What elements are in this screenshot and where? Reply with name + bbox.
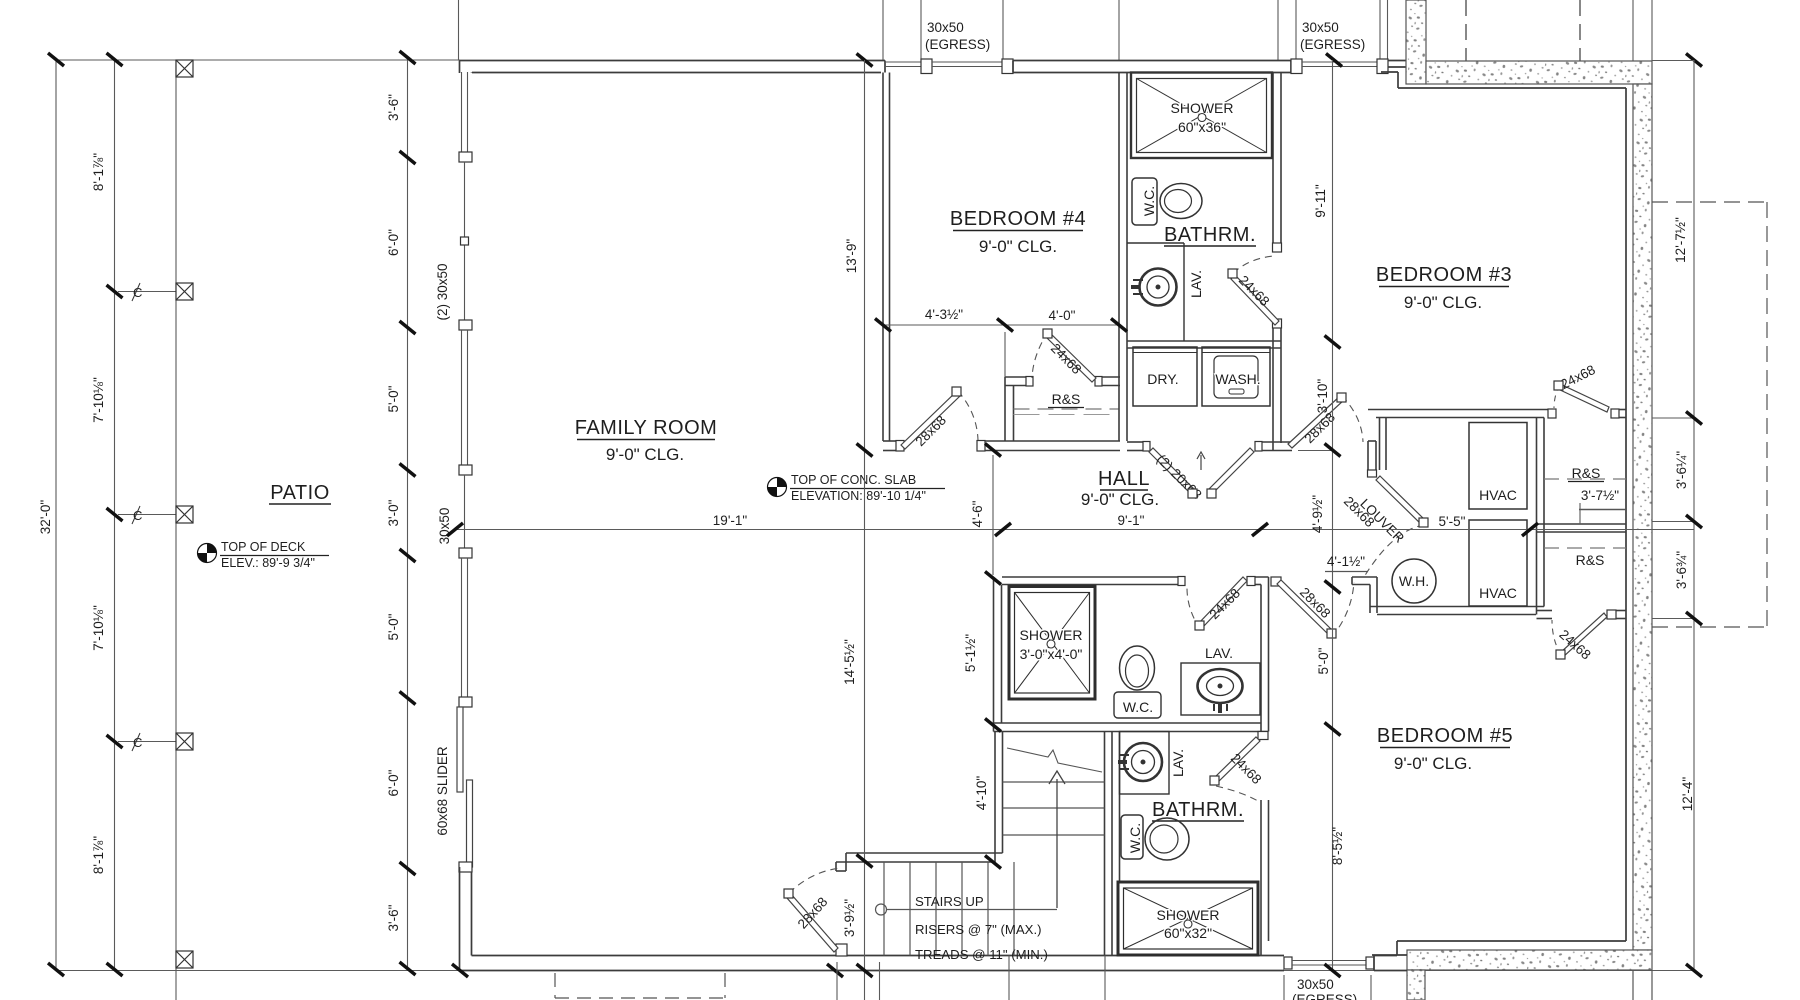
svg-text:(EGRESS): (EGRESS) [1300,37,1365,52]
svg-text:12'-7½": 12'-7½" [1673,217,1688,263]
svg-text:3'-6": 3'-6" [386,94,401,121]
svg-text:9'-0" CLG.: 9'-0" CLG. [606,445,684,464]
svg-text:4'-6": 4'-6" [970,500,985,527]
svg-text:LAV.: LAV. [1205,645,1233,661]
svg-text:RISERS @ 7" (MAX.): RISERS @ 7" (MAX.) [915,922,1042,937]
svg-text:HVAC: HVAC [1479,487,1517,503]
svg-text:4'-9½": 4'-9½" [1310,495,1325,533]
svg-text:W.C.: W.C. [1127,823,1143,853]
svg-text:TOP OF DECK: TOP OF DECK [221,540,306,554]
svg-text:BEDROOM #4: BEDROOM #4 [950,208,1086,230]
svg-text:8'-1⅞": 8'-1⅞" [91,153,106,191]
svg-text:9'-1": 9'-1" [1118,513,1145,528]
svg-text:HVAC: HVAC [1479,585,1517,601]
svg-text:TREADS @ 11" (MIN.): TREADS @ 11" (MIN.) [915,947,1048,962]
svg-text:4'-1½": 4'-1½" [1327,554,1365,569]
svg-text:4'-10": 4'-10" [974,776,989,811]
svg-text:8'-1⅞": 8'-1⅞" [91,836,106,874]
svg-text:9'-0" CLG.: 9'-0" CLG. [1081,490,1159,509]
svg-text:9'-0" CLG.: 9'-0" CLG. [1404,293,1482,312]
svg-text:7'-10⅛": 7'-10⅛" [91,377,106,423]
svg-text:3'-0": 3'-0" [386,499,401,526]
svg-text:5'-1½": 5'-1½" [963,634,978,672]
svg-text:TOP OF CONC. SLAB: TOP OF CONC. SLAB [791,473,916,487]
svg-text:WASH.: WASH. [1215,371,1260,387]
svg-text:13'-9": 13'-9" [844,239,859,274]
svg-text:LAV.: LAV. [1188,270,1204,298]
svg-text:5'-0": 5'-0" [1316,647,1331,674]
svg-text:BEDROOM #3: BEDROOM #3 [1376,264,1512,286]
svg-text:W.C.: W.C. [1123,699,1153,715]
svg-text:FAMILY ROOM: FAMILY ROOM [575,417,718,439]
svg-text:9'-0" CLG.: 9'-0" CLG. [1394,754,1472,773]
svg-text:12'-4": 12'-4" [1680,777,1695,812]
svg-text:W.H.: W.H. [1399,573,1429,589]
svg-text:3'-6¾": 3'-6¾" [1674,551,1689,589]
svg-text:R&S: R&S [1572,465,1601,481]
svg-text:9'-11": 9'-11" [1313,184,1328,218]
svg-text:60x68 SLIDER: 60x68 SLIDER [435,746,450,836]
svg-text:R&S: R&S [1052,391,1081,407]
svg-text:6'-0": 6'-0" [386,769,401,796]
svg-text:3'-6": 3'-6" [386,904,401,931]
svg-text:5'-0": 5'-0" [386,613,401,640]
svg-text:30x50: 30x50 [1302,20,1339,35]
svg-text:30x50: 30x50 [1297,977,1334,992]
svg-text:3'-6¼": 3'-6¼" [1674,451,1689,489]
svg-text:ELEV.: 89'-9 3/4": ELEV.: 89'-9 3/4" [221,556,315,570]
svg-text:(2) 30x50: (2) 30x50 [435,263,450,320]
svg-text:4'-3½": 4'-3½" [925,307,963,322]
svg-text:30x50: 30x50 [437,508,452,545]
svg-text:3'-10": 3'-10" [1315,379,1330,414]
svg-text:R&S: R&S [1576,552,1605,568]
svg-text:(EGRESS): (EGRESS) [925,37,990,52]
svg-text:9'-0" CLG.: 9'-0" CLG. [979,237,1057,256]
svg-text:30x50: 30x50 [927,20,964,35]
svg-text:5'-0": 5'-0" [386,385,401,412]
svg-text:PATIO: PATIO [270,482,330,504]
svg-text:(EGRESS): (EGRESS) [1292,992,1357,1000]
svg-text:3'-7½": 3'-7½" [1581,488,1619,503]
svg-text:19'-1": 19'-1" [713,513,748,528]
svg-text:5'-5": 5'-5" [1439,514,1466,529]
svg-text:HALL: HALL [1098,468,1150,490]
svg-text:STAIRS UP: STAIRS UP [915,894,984,909]
svg-text:6'-0": 6'-0" [386,229,401,256]
svg-text:3'-9½": 3'-9½" [842,899,857,937]
svg-text:LAV.: LAV. [1170,749,1186,777]
svg-text:32'-0": 32'-0" [38,500,53,535]
svg-text:W.C.: W.C. [1141,186,1157,216]
svg-text:DRY.: DRY. [1147,371,1178,387]
svg-text:BEDROOM #5: BEDROOM #5 [1377,725,1513,747]
svg-text:14'-5½": 14'-5½" [842,639,857,685]
svg-text:8'-5½": 8'-5½" [1330,827,1345,865]
svg-text:7'-10⅛": 7'-10⅛" [91,605,106,651]
svg-text:4'-0": 4'-0" [1049,308,1076,323]
svg-text:ELEVATION: 89'-10 1/4": ELEVATION: 89'-10 1/4" [791,489,926,503]
